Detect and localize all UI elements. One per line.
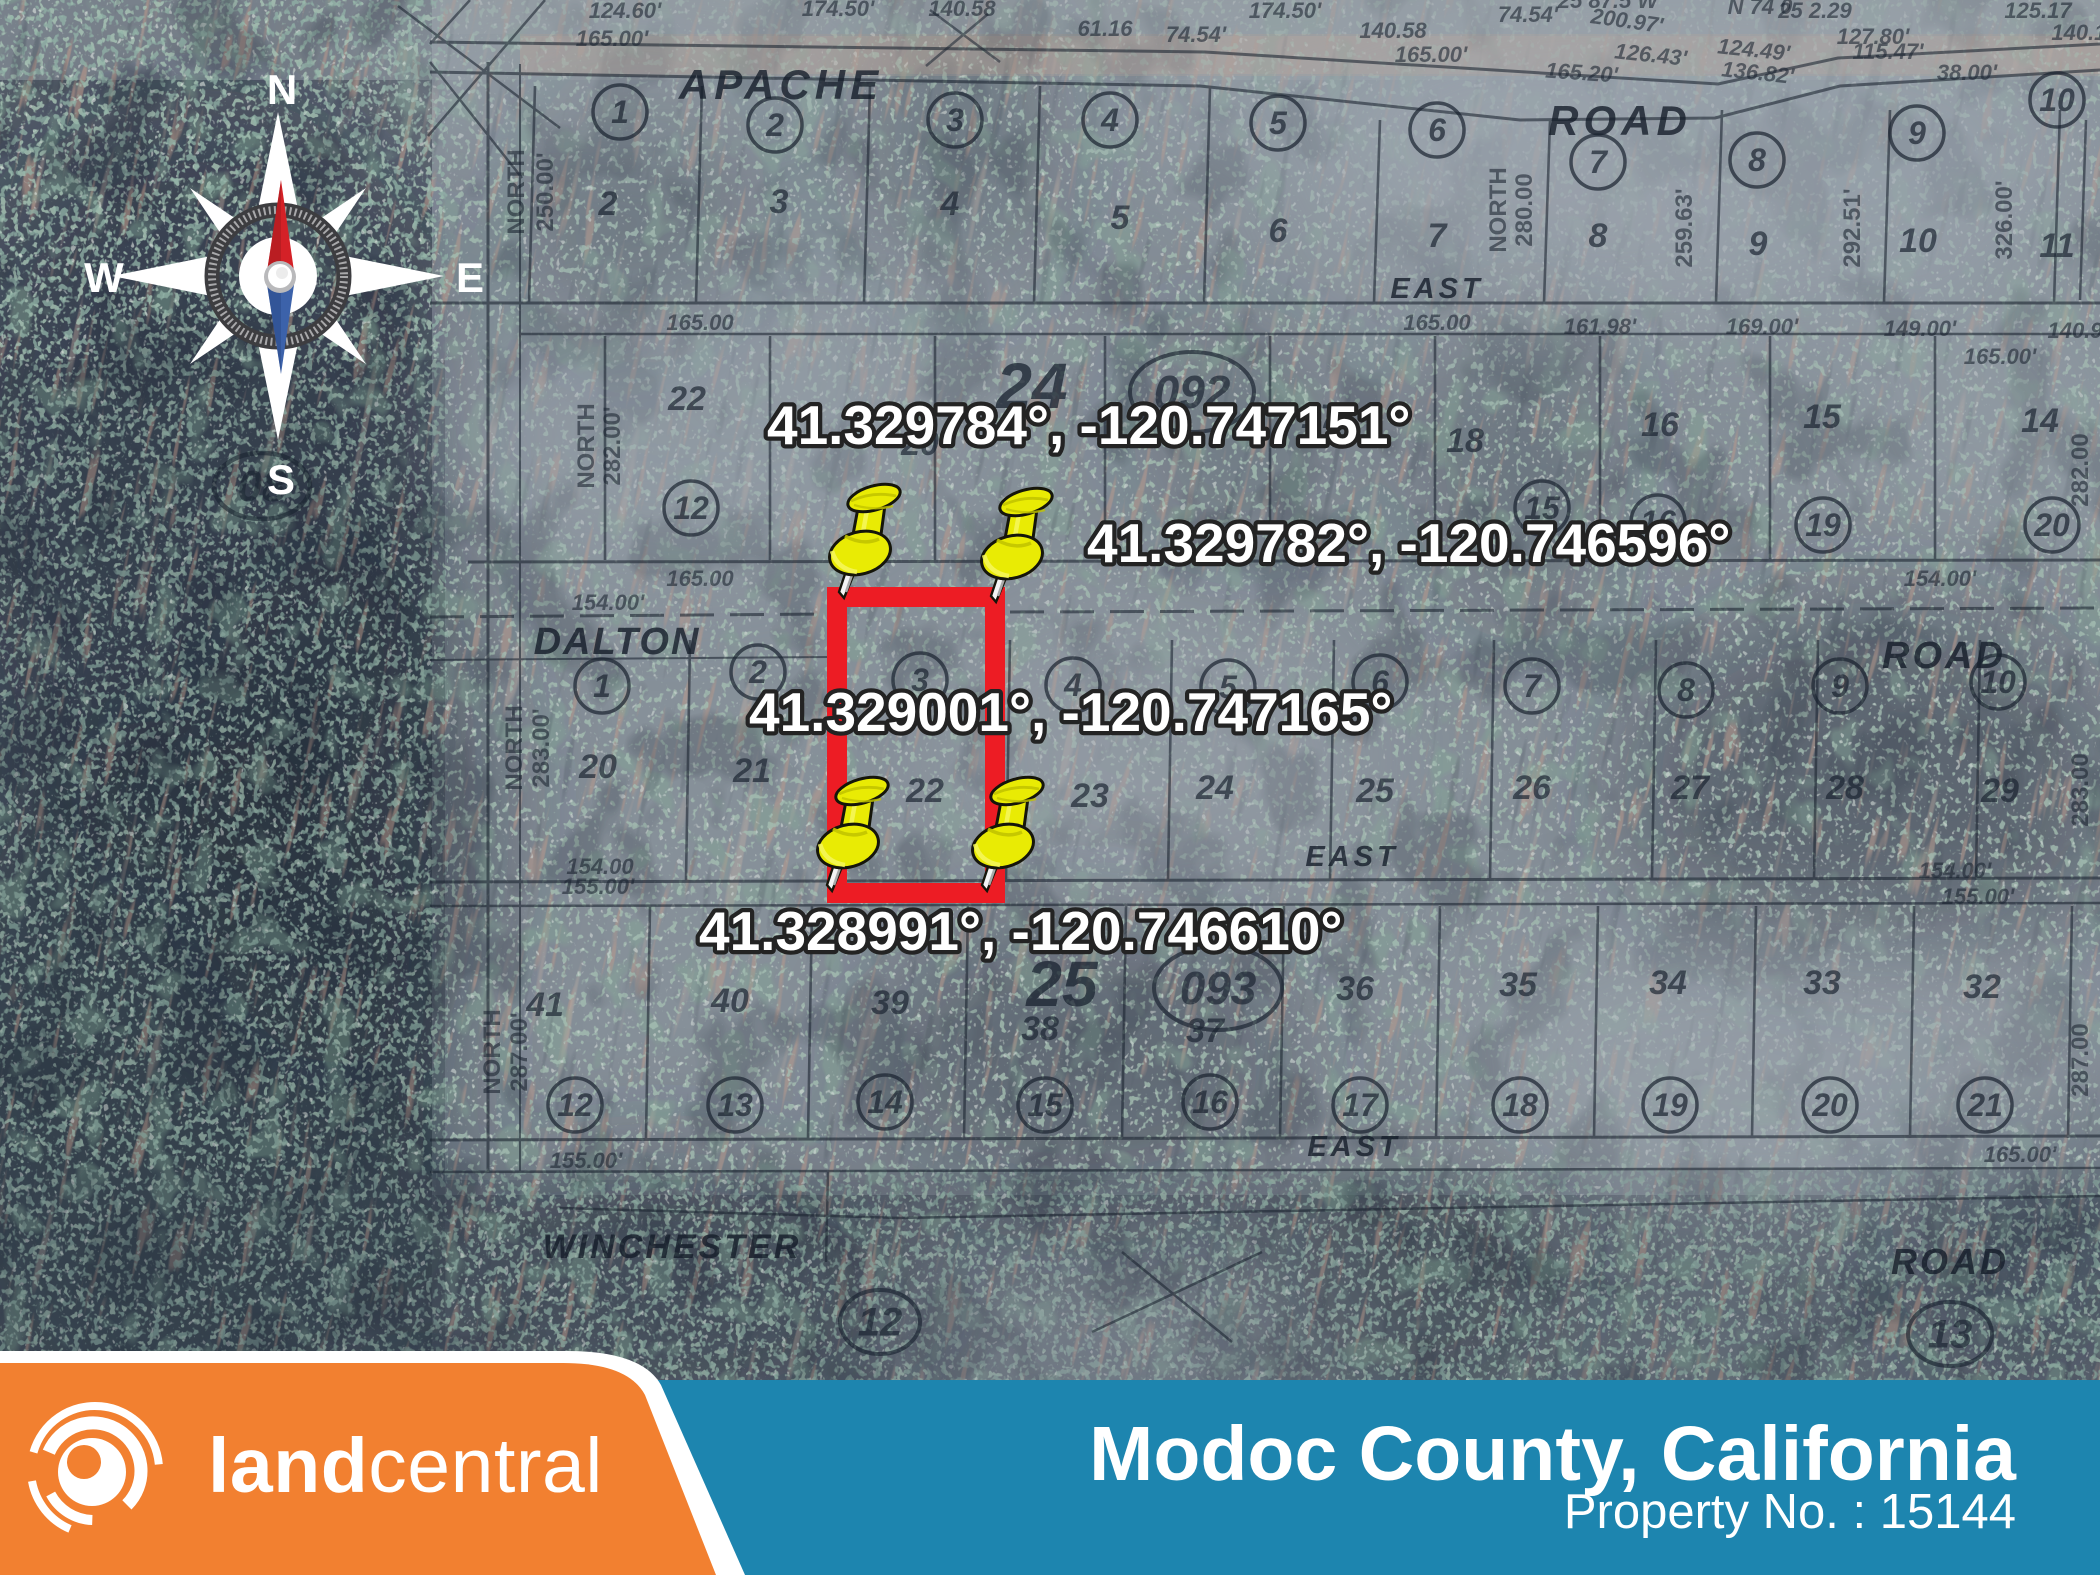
svg-text:326.00': 326.00' xyxy=(1991,180,2018,259)
svg-text:22: 22 xyxy=(667,380,706,418)
svg-text:155.00': 155.00' xyxy=(562,874,635,899)
svg-text:25: 25 xyxy=(1355,772,1395,810)
svg-text:14: 14 xyxy=(867,1084,903,1120)
svg-text:15: 15 xyxy=(1803,398,1842,436)
svg-text:6: 6 xyxy=(1428,112,1446,148)
svg-text:E: E xyxy=(456,254,484,301)
svg-text:140.58: 140.58 xyxy=(928,0,996,21)
svg-text:155.00': 155.00' xyxy=(1942,884,2015,909)
svg-text:140.58: 140.58 xyxy=(1359,18,1427,43)
svg-text:NORTH: NORTH xyxy=(1485,167,1512,252)
svg-text:093: 093 xyxy=(1180,962,1257,1014)
svg-text:282.00: 282.00 xyxy=(2067,433,2094,506)
svg-text:8: 8 xyxy=(1748,142,1766,178)
svg-text:7: 7 xyxy=(1428,217,1449,255)
svg-text:NORTH: NORTH xyxy=(479,1009,506,1094)
svg-text:NORTH: NORTH xyxy=(503,149,530,234)
svg-text:280.00: 280.00 xyxy=(1511,173,1538,246)
svg-text:18: 18 xyxy=(1502,1087,1538,1123)
svg-text:16: 16 xyxy=(1192,1084,1228,1120)
svg-text:2: 2 xyxy=(765,107,784,143)
svg-text:140.18: 140.18 xyxy=(2051,20,2100,45)
svg-text:39: 39 xyxy=(871,984,909,1022)
svg-text:165.00: 165.00 xyxy=(666,566,734,591)
svg-text:15: 15 xyxy=(1027,1087,1064,1123)
svg-text:10: 10 xyxy=(1899,222,1937,260)
svg-text:22: 22 xyxy=(905,772,944,810)
svg-text:35: 35 xyxy=(1499,966,1538,1004)
svg-text:32: 32 xyxy=(1963,968,2001,1006)
svg-text:23: 23 xyxy=(1070,777,1109,815)
svg-text:287.00': 287.00' xyxy=(506,1012,533,1091)
svg-text:DALTON: DALTON xyxy=(534,621,701,663)
svg-text:165.00': 165.00' xyxy=(1984,1142,2057,1167)
svg-text:EAST: EAST xyxy=(1305,841,1398,873)
svg-text:115.47': 115.47' xyxy=(1853,39,1925,64)
svg-text:283.00: 283.00 xyxy=(2067,753,2094,826)
svg-text:4: 4 xyxy=(1100,102,1119,138)
svg-text:36: 36 xyxy=(1336,970,1375,1008)
svg-text:33: 33 xyxy=(1803,964,1841,1002)
svg-text:19: 19 xyxy=(1805,507,1841,543)
svg-text:287.00: 287.00 xyxy=(2067,1023,2094,1096)
svg-text:165.00: 165.00 xyxy=(666,310,734,335)
svg-text:18: 18 xyxy=(1446,422,1484,460)
svg-text:165.00': 165.00' xyxy=(1395,42,1468,67)
svg-text:25 87.5 W: 25 87.5 W xyxy=(1557,0,1661,13)
svg-text:6: 6 xyxy=(1269,212,1289,250)
svg-text:169.00': 169.00' xyxy=(1726,314,1799,339)
svg-text:29: 29 xyxy=(1980,772,2019,810)
svg-text:27: 27 xyxy=(1670,769,1711,807)
svg-text:3: 3 xyxy=(770,183,789,221)
svg-text:165.00: 165.00 xyxy=(1403,310,1471,335)
svg-text:10: 10 xyxy=(1980,664,2016,700)
svg-text:EAST: EAST xyxy=(1307,1131,1400,1163)
svg-text:41.329784°, -120.747151°: 41.329784°, -120.747151° xyxy=(767,394,1410,456)
svg-text:ROAD: ROAD xyxy=(1891,1241,2009,1282)
svg-text:165.00': 165.00' xyxy=(576,26,649,51)
svg-text:Property No. : 15144: Property No. : 15144 xyxy=(1564,1485,2016,1539)
svg-text:WINCHESTER: WINCHESTER xyxy=(543,1228,802,1266)
svg-text:28: 28 xyxy=(1825,769,1864,807)
svg-text:12: 12 xyxy=(673,490,709,526)
svg-text:8: 8 xyxy=(1677,672,1695,708)
svg-text:161.98': 161.98' xyxy=(1564,314,1637,339)
svg-text:174.50': 174.50' xyxy=(802,0,875,21)
svg-text:154.00': 154.00' xyxy=(1904,566,1977,591)
svg-text:13: 13 xyxy=(1928,1313,1973,1357)
svg-text:41.329001°, -120.747165°: 41.329001°, -120.747165° xyxy=(749,681,1392,743)
svg-text:149.00': 149.00' xyxy=(1884,316,1957,341)
svg-text:259.63': 259.63' xyxy=(1671,188,1698,267)
svg-text:EAST: EAST xyxy=(1390,273,1483,305)
svg-text:74.54': 74.54' xyxy=(1498,2,1559,27)
svg-text:155.00': 155.00' xyxy=(550,1148,623,1173)
svg-text:165.00': 165.00' xyxy=(1964,344,2037,369)
svg-text:N: N xyxy=(267,66,297,113)
svg-text:7: 7 xyxy=(1589,144,1609,180)
svg-text:12: 12 xyxy=(858,1301,903,1345)
svg-text:NORTH: NORTH xyxy=(501,705,528,790)
svg-text:4: 4 xyxy=(940,185,960,223)
svg-text:124.60': 124.60' xyxy=(589,0,662,23)
svg-text:11: 11 xyxy=(2039,227,2074,265)
svg-text:154.00': 154.00' xyxy=(1919,858,1992,883)
svg-text:S: S xyxy=(267,456,295,503)
svg-text:2: 2 xyxy=(598,185,618,223)
svg-text:8: 8 xyxy=(1589,217,1608,255)
svg-text:20: 20 xyxy=(2033,507,2070,543)
svg-text:20: 20 xyxy=(578,748,617,786)
svg-text:21: 21 xyxy=(1966,1087,2003,1123)
svg-text:19: 19 xyxy=(1652,1087,1688,1123)
svg-text:9: 9 xyxy=(1908,115,1926,151)
svg-text:154.00': 154.00' xyxy=(572,590,645,615)
svg-text:26: 26 xyxy=(1512,769,1552,807)
svg-text:34: 34 xyxy=(1649,964,1687,1002)
svg-text:5: 5 xyxy=(1269,105,1288,141)
svg-text:16: 16 xyxy=(1641,406,1680,444)
svg-text:12: 12 xyxy=(557,1087,593,1123)
svg-text:61.16: 61.16 xyxy=(1077,16,1133,41)
svg-text:1: 1 xyxy=(611,94,629,130)
svg-text:3: 3 xyxy=(946,102,964,138)
svg-text:174.50': 174.50' xyxy=(1249,0,1322,23)
svg-text:5: 5 xyxy=(1111,199,1131,237)
svg-text:10: 10 xyxy=(2039,82,2075,118)
svg-text:NORTH: NORTH xyxy=(573,403,600,488)
svg-text:38.00': 38.00' xyxy=(1937,60,1998,85)
svg-text:40: 40 xyxy=(710,982,749,1020)
svg-text:140.9: 140.9 xyxy=(2047,318,2100,343)
svg-text:25 2.29: 25 2.29 xyxy=(1777,0,1852,23)
svg-text:292.51': 292.51' xyxy=(1839,188,1866,267)
svg-text:41.329782°, -120.746596°: 41.329782°, -120.746596° xyxy=(1087,512,1730,574)
svg-text:7: 7 xyxy=(1523,668,1543,704)
svg-text:ROAD: ROAD xyxy=(1548,97,1692,144)
svg-text:283.00': 283.00' xyxy=(528,708,555,787)
svg-text:landcentral: landcentral xyxy=(208,1423,603,1509)
svg-text:APACHE: APACHE xyxy=(678,61,883,108)
svg-text:165.20': 165.20' xyxy=(1544,58,1619,88)
svg-text:282.00': 282.00' xyxy=(599,406,626,485)
svg-text:13: 13 xyxy=(717,1087,753,1123)
svg-text:41.328991°, -120.746610°: 41.328991°, -120.746610° xyxy=(699,900,1342,962)
svg-text:W: W xyxy=(84,254,124,301)
svg-text:24: 24 xyxy=(1195,769,1234,807)
svg-text:20: 20 xyxy=(1811,1087,1848,1123)
svg-text:1: 1 xyxy=(593,668,611,704)
svg-text:250.00': 250.00' xyxy=(532,152,559,231)
svg-text:21: 21 xyxy=(732,752,771,790)
svg-text:74.54': 74.54' xyxy=(1166,22,1227,47)
svg-text:9: 9 xyxy=(1749,225,1768,263)
svg-text:14: 14 xyxy=(2021,402,2059,440)
svg-text:17: 17 xyxy=(1342,1087,1380,1123)
svg-text:9: 9 xyxy=(1831,668,1849,704)
